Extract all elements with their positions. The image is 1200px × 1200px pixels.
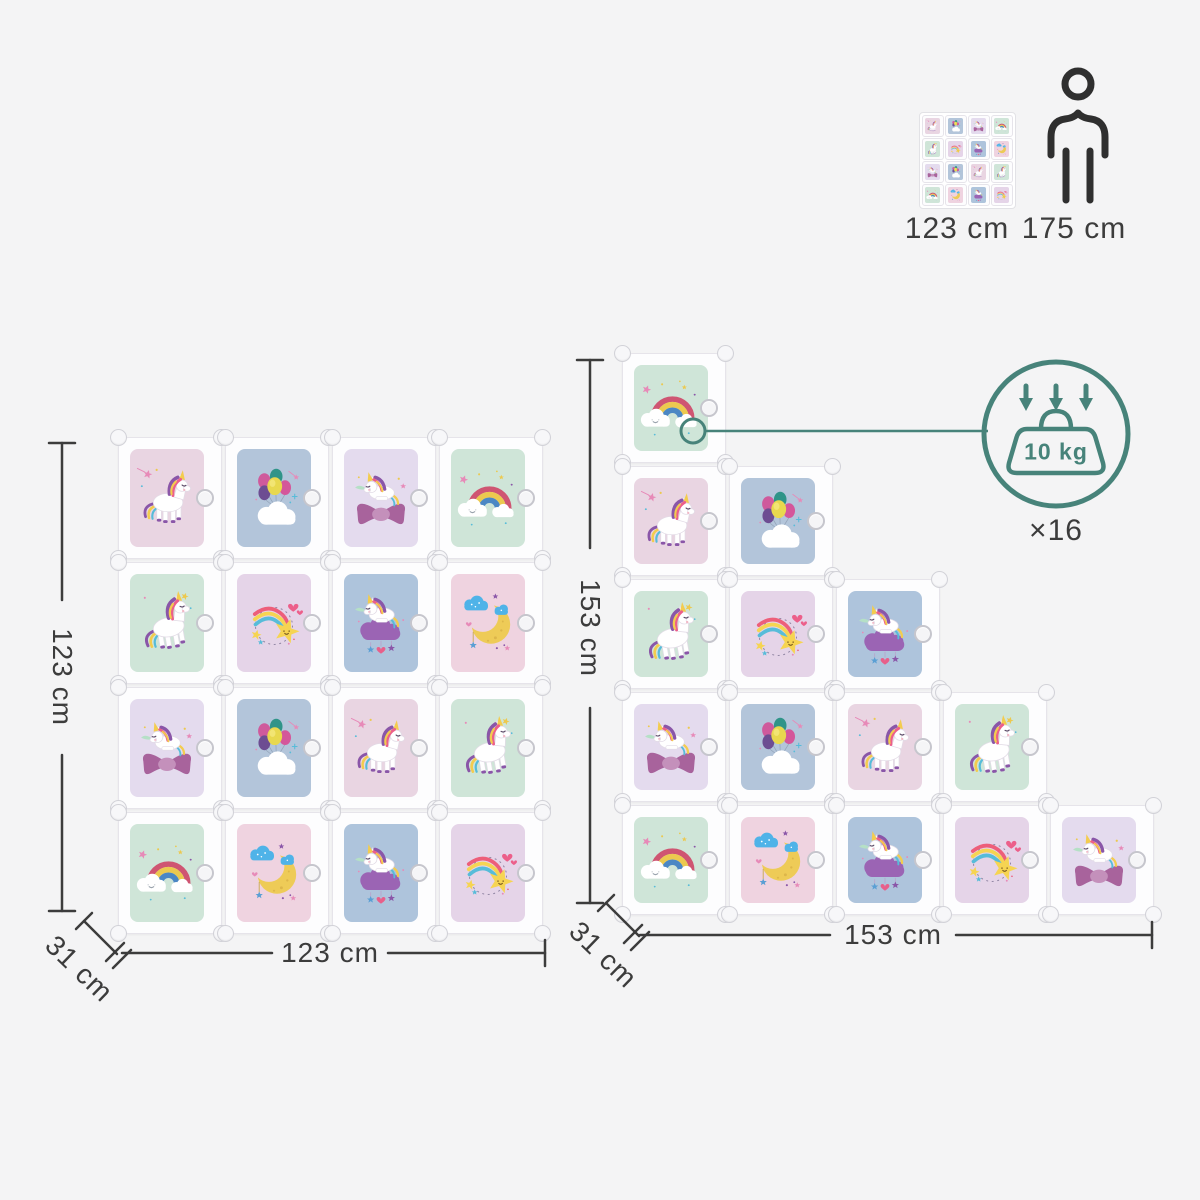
cube-door-rainbow-cloud [991, 115, 1013, 137]
door-panel [994, 187, 1009, 203]
connector-ball-icon [614, 797, 631, 814]
cube-door-shooting-star [991, 184, 1013, 206]
shooting-star-icon [994, 187, 1009, 203]
unicorn-standing-icon [130, 449, 204, 547]
knob-icon [410, 614, 428, 632]
door-panel [971, 187, 986, 203]
door-panel [925, 164, 940, 180]
unicorn-cloud-icon [848, 591, 922, 677]
door-panel [948, 141, 963, 157]
rainbow-cloud-icon [130, 824, 204, 922]
unicorn-standing-icon [634, 478, 708, 564]
connector-ball-icon [721, 797, 738, 814]
knob-icon [410, 739, 428, 757]
door-panel [848, 817, 922, 903]
cube-door-unicorn-standing [622, 466, 726, 576]
cube-door-unicorn-standing [332, 687, 436, 809]
connector-ball-icon [1042, 797, 1059, 814]
cube-door-shooting-star [945, 138, 967, 160]
rainbow-cloud-icon [451, 449, 525, 547]
shooting-star-icon [948, 141, 963, 157]
connector-ball-icon [534, 429, 551, 446]
cube-door-shooting-star [943, 805, 1047, 915]
balloons-cloud-icon [237, 699, 311, 797]
door-panel [344, 699, 418, 797]
unicorn-cloud-icon [848, 817, 922, 903]
door-panel [848, 591, 922, 677]
person-icon [1051, 71, 1105, 200]
knob-icon [196, 489, 214, 507]
cube-door-unicorn-standing [118, 437, 222, 559]
cube-door-unicorn-standing [836, 692, 940, 802]
connector-ball-icon [828, 571, 845, 588]
connector-ball-icon [721, 571, 738, 588]
knob-icon [700, 625, 718, 643]
door-panel [948, 187, 963, 203]
connector-ball-icon [614, 906, 631, 923]
load-capacity-label: 10 kg [1024, 439, 1088, 466]
cube-door-shooting-star [729, 579, 833, 689]
left-unit-height-label: 123 cm [46, 628, 78, 726]
knob-icon [914, 851, 932, 869]
cube-door-unicorn-bow [1050, 805, 1154, 915]
connector-ball-icon [110, 804, 127, 821]
knob-icon [303, 489, 321, 507]
door-panel [130, 824, 204, 922]
moon-clouds-icon [741, 817, 815, 903]
connector-ball-icon [110, 925, 127, 942]
door-panel [1062, 817, 1136, 903]
shooting-star-icon [741, 591, 815, 677]
connector-ball-icon [431, 554, 448, 571]
cube-door-rainbow-cloud [439, 437, 543, 559]
door-panel [634, 591, 708, 677]
knob-icon [1021, 738, 1039, 756]
cube-door-rainbow-cloud [622, 805, 726, 915]
unicorn-cloud-icon [971, 187, 986, 203]
balloons-cloud-icon [741, 704, 815, 790]
knob-icon [700, 738, 718, 756]
unicorn-bow-icon [925, 164, 940, 180]
cube-door-unicorn-running [943, 692, 1047, 802]
connector-ball-icon [614, 571, 631, 588]
door-panel [994, 164, 1009, 180]
cube-door-shooting-star [439, 812, 543, 934]
door-panel [948, 164, 963, 180]
knob-icon [196, 739, 214, 757]
cube-door-balloons-cloud [729, 692, 833, 802]
door-panel [971, 141, 986, 157]
knob-icon [517, 489, 535, 507]
unicorn-standing-icon [971, 164, 986, 180]
knob-icon [700, 512, 718, 530]
connector-ball-icon [110, 429, 127, 446]
connector-ball-icon [935, 906, 952, 923]
door-panel [948, 118, 963, 134]
cube-door-moon-clouds [991, 138, 1013, 160]
knob-icon [807, 851, 825, 869]
unicorn-running-icon [955, 704, 1029, 790]
cube-door-balloons-cloud [225, 437, 329, 559]
unicorn-cloud-icon [344, 574, 418, 672]
unicorn-standing-icon [848, 704, 922, 790]
unicorn-bow-icon [971, 118, 986, 134]
right-unit-depth-label: 31 cm [563, 915, 644, 994]
door-panel [451, 574, 525, 672]
unicorn-bow-icon [1062, 817, 1136, 903]
connector-ball-icon [534, 679, 551, 696]
connector-ball-icon [431, 429, 448, 446]
cube-door-moon-clouds [729, 805, 833, 915]
cube-door-balloons-cloud [945, 115, 967, 137]
moon-clouds-icon [948, 187, 963, 203]
connector-ball-icon [324, 679, 341, 696]
cube-storage-left-4x4 [118, 437, 543, 934]
door-panel [130, 699, 204, 797]
knob-icon [303, 614, 321, 632]
connector-ball-icon [110, 679, 127, 696]
cabinet-height-label: 123 cm [905, 212, 1009, 246]
connector-ball-icon [431, 925, 448, 942]
cube-door-rainbow-cloud [118, 812, 222, 934]
connector-ball-icon [717, 345, 734, 362]
connector-ball-icon [324, 925, 341, 942]
cube-door-rainbow-cloud [922, 184, 944, 206]
door-panel [741, 817, 815, 903]
knob-icon [1021, 851, 1039, 869]
moon-clouds-icon [451, 574, 525, 672]
connector-ball-icon [614, 684, 631, 701]
connector-ball-icon [721, 684, 738, 701]
unicorn-running-icon [994, 164, 1009, 180]
unicorn-standing-icon [344, 699, 418, 797]
connector-ball-icon [1042, 906, 1059, 923]
door-panel [994, 141, 1009, 157]
connector-ball-icon [217, 679, 234, 696]
left-unit-depth-label: 31 cm [39, 929, 120, 1008]
door-panel [925, 187, 940, 203]
cube-door-unicorn-cloud [968, 138, 990, 160]
unicorn-cloud-icon [971, 141, 986, 157]
door-panel [994, 118, 1009, 134]
cube-door-unicorn-cloud [836, 579, 940, 689]
connector-ball-icon [217, 925, 234, 942]
unicorn-running-icon [925, 141, 940, 157]
cube-door-unicorn-standing [922, 115, 944, 137]
moon-clouds-icon [994, 141, 1009, 157]
connector-ball-icon [935, 797, 952, 814]
connector-ball-icon [217, 554, 234, 571]
cube-door-unicorn-running [922, 138, 944, 160]
cube-door-unicorn-cloud [968, 184, 990, 206]
cube-door-moon-clouds [945, 184, 967, 206]
cube-door-unicorn-cloud [836, 805, 940, 915]
connector-ball-icon [534, 925, 551, 942]
door-panel [741, 704, 815, 790]
unicorn-bow-icon [344, 449, 418, 547]
door-panel [971, 164, 986, 180]
connector-ball-icon [1145, 797, 1162, 814]
balloons-cloud-icon [948, 164, 963, 180]
cube-door-rainbow-cloud [622, 353, 726, 463]
knob-icon [517, 614, 535, 632]
shooting-star-icon [237, 574, 311, 672]
knob-icon [517, 739, 535, 757]
right-unit-width-label: 153 cm [844, 919, 942, 951]
connector-ball-icon [935, 684, 952, 701]
connector-ball-icon [824, 458, 841, 475]
door-panel [955, 704, 1029, 790]
knob-icon [914, 738, 932, 756]
door-panel [741, 591, 815, 677]
balloons-cloud-icon [237, 449, 311, 547]
connector-ball-icon [931, 571, 948, 588]
person-height-label: 175 cm [1022, 212, 1126, 246]
connector-ball-icon [324, 804, 341, 821]
knob-icon [914, 625, 932, 643]
connector-ball-icon [324, 429, 341, 446]
door-panel [237, 824, 311, 922]
door-panel [634, 365, 708, 451]
cube-door-unicorn-bow [922, 161, 944, 183]
cube-door-balloons-cloud [729, 466, 833, 576]
door-panel [237, 449, 311, 547]
cube-count-label: ×16 [1029, 514, 1083, 548]
rainbow-cloud-icon [634, 817, 708, 903]
knob-icon [700, 851, 718, 869]
cube-door-moon-clouds [225, 812, 329, 934]
connector-ball-icon [1145, 906, 1162, 923]
knob-icon [517, 864, 535, 882]
unicorn-bow-icon [634, 704, 708, 790]
connector-ball-icon [828, 684, 845, 701]
cube-door-unicorn-cloud [332, 562, 436, 684]
door-panel [451, 699, 525, 797]
door-panel [130, 449, 204, 547]
door-panel [848, 704, 922, 790]
rainbow-cloud-icon [925, 187, 940, 203]
unicorn-running-icon [130, 574, 204, 672]
knob-icon [807, 625, 825, 643]
shooting-star-icon [955, 817, 1029, 903]
rainbow-cloud-icon [994, 118, 1009, 134]
knob-icon [1128, 851, 1146, 869]
unicorn-standing-icon [925, 118, 940, 134]
mini-cabinet-icon [919, 112, 1016, 209]
cube-door-unicorn-standing [968, 161, 990, 183]
balloons-cloud-icon [741, 478, 815, 564]
unicorn-bow-icon [130, 699, 204, 797]
knob-icon [196, 614, 214, 632]
knob-icon [196, 864, 214, 882]
door-panel [634, 817, 708, 903]
connector-ball-icon [324, 554, 341, 571]
cube-storage-right-staircase [622, 353, 1154, 915]
cube-door-unicorn-bow [332, 437, 436, 559]
knob-icon [303, 739, 321, 757]
product-dimension-diagram: 123 cm 123 cm 31 cm 153 cm 153 cm 31 cm … [0, 0, 1200, 1200]
door-panel [344, 449, 418, 547]
door-panel [237, 699, 311, 797]
balloons-cloud-icon [948, 118, 963, 134]
cube-door-unicorn-running [991, 161, 1013, 183]
connector-ball-icon [1038, 684, 1055, 701]
connector-ball-icon [217, 429, 234, 446]
door-panel [971, 118, 986, 134]
unicorn-running-icon [451, 699, 525, 797]
connector-ball-icon [721, 906, 738, 923]
connector-ball-icon [614, 345, 631, 362]
cube-door-unicorn-running [622, 579, 726, 689]
knob-icon [807, 512, 825, 530]
door-panel [925, 141, 940, 157]
shooting-star-icon [451, 824, 525, 922]
connector-ball-icon [721, 458, 738, 475]
right-unit-height-label: 153 cm [574, 579, 606, 677]
cube-door-shooting-star [225, 562, 329, 684]
connector-ball-icon [431, 679, 448, 696]
cube-door-unicorn-bow [622, 692, 726, 802]
knob-icon [410, 864, 428, 882]
door-panel [955, 817, 1029, 903]
connector-ball-icon [431, 804, 448, 821]
connector-ball-icon [614, 458, 631, 475]
knob-icon [410, 489, 428, 507]
door-panel [451, 449, 525, 547]
cube-door-unicorn-cloud [332, 812, 436, 934]
cube-door-balloons-cloud [225, 687, 329, 809]
knob-icon [700, 399, 718, 417]
door-panel [634, 704, 708, 790]
cube-door-unicorn-bow [118, 687, 222, 809]
connector-ball-icon [828, 906, 845, 923]
cube-door-moon-clouds [439, 562, 543, 684]
connector-ball-icon [534, 804, 551, 821]
door-panel [237, 574, 311, 672]
door-panel [634, 478, 708, 564]
connector-ball-icon [534, 554, 551, 571]
connector-ball-icon [828, 797, 845, 814]
door-panel [344, 824, 418, 922]
door-panel [925, 118, 940, 134]
unicorn-cloud-icon [344, 824, 418, 922]
connector-ball-icon [110, 554, 127, 571]
cube-door-balloons-cloud [945, 161, 967, 183]
moon-clouds-icon [237, 824, 311, 922]
rainbow-cloud-icon [634, 365, 708, 451]
knob-icon [807, 738, 825, 756]
door-panel [344, 574, 418, 672]
unicorn-running-icon [634, 591, 708, 677]
cube-door-unicorn-bow [968, 115, 990, 137]
cube-door-unicorn-running [439, 687, 543, 809]
door-panel [130, 574, 204, 672]
cube-door-unicorn-running [118, 562, 222, 684]
door-panel [741, 478, 815, 564]
door-panel [451, 824, 525, 922]
knob-icon [303, 864, 321, 882]
connector-ball-icon [217, 804, 234, 821]
